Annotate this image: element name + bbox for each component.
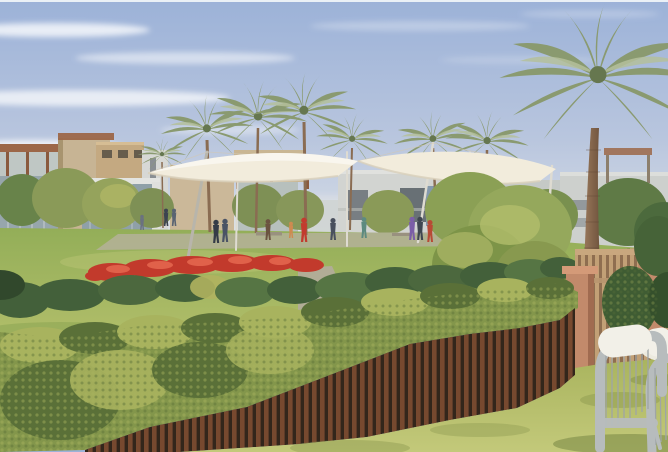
pergola-beam <box>0 144 62 152</box>
park-rendering <box>0 0 668 452</box>
park-rendering-canvas <box>0 0 668 452</box>
bench <box>392 233 412 236</box>
top-edge-highlight <box>0 0 668 2</box>
roof-pergola <box>604 148 652 155</box>
